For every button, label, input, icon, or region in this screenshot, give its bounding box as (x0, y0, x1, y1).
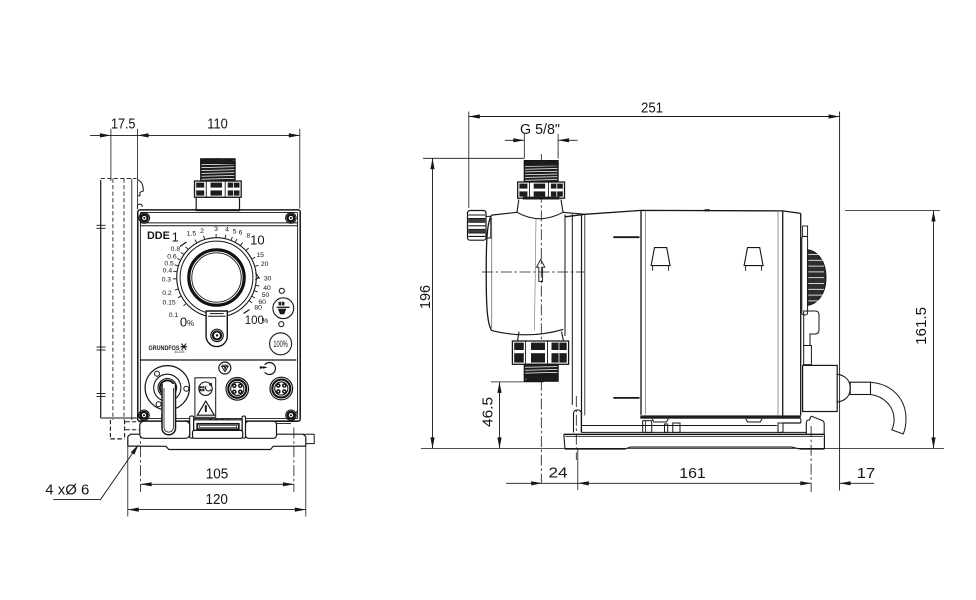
svg-text:24: 24 (549, 465, 568, 482)
svg-text:17.5: 17.5 (111, 115, 136, 132)
svg-text:0.8: 0.8 (171, 246, 181, 253)
svg-text:DDE: DDE (147, 230, 170, 242)
svg-text:0.2: 0.2 (162, 290, 172, 297)
svg-text:0.5: 0.5 (164, 261, 174, 268)
svg-text:3: 3 (214, 226, 218, 233)
svg-text:110: 110 (207, 115, 228, 132)
svg-text:251: 251 (641, 99, 663, 116)
svg-text:100%: 100% (273, 339, 288, 349)
svg-text:105: 105 (206, 466, 229, 483)
svg-text:G 5/8": G 5/8" (520, 121, 560, 138)
svg-text:%: % (262, 316, 269, 325)
svg-text:20: 20 (261, 261, 269, 268)
svg-text:0.4: 0.4 (163, 268, 173, 275)
svg-text:%: % (187, 319, 194, 328)
svg-text:4 xØ 6: 4 xØ 6 (45, 482, 89, 499)
svg-text:161: 161 (679, 465, 706, 482)
svg-text:2: 2 (200, 228, 204, 235)
svg-text:161.5: 161.5 (913, 307, 930, 345)
svg-text:46.5: 46.5 (480, 397, 497, 427)
svg-text:50: 50 (262, 292, 270, 299)
svg-text:ALLDOS: ALLDOS (175, 350, 186, 354)
svg-text:80: 80 (254, 304, 262, 311)
svg-text:0.1: 0.1 (169, 312, 179, 319)
svg-text:17: 17 (857, 465, 876, 482)
svg-text:1: 1 (172, 229, 179, 244)
svg-text:30: 30 (264, 276, 272, 283)
svg-text:0.6: 0.6 (167, 253, 177, 260)
svg-text:4: 4 (225, 227, 229, 234)
svg-text:196: 196 (417, 285, 434, 309)
svg-text:1.5: 1.5 (187, 231, 197, 238)
svg-text:0.15: 0.15 (162, 300, 175, 307)
svg-text:120: 120 (205, 491, 228, 508)
svg-text:40: 40 (263, 285, 271, 292)
svg-text:0: 0 (180, 315, 187, 330)
svg-text:10: 10 (250, 233, 264, 248)
svg-text:5: 5 (233, 229, 237, 236)
svg-text:15: 15 (256, 252, 264, 259)
svg-text:0.3: 0.3 (162, 277, 172, 284)
svg-text:6: 6 (239, 230, 243, 237)
